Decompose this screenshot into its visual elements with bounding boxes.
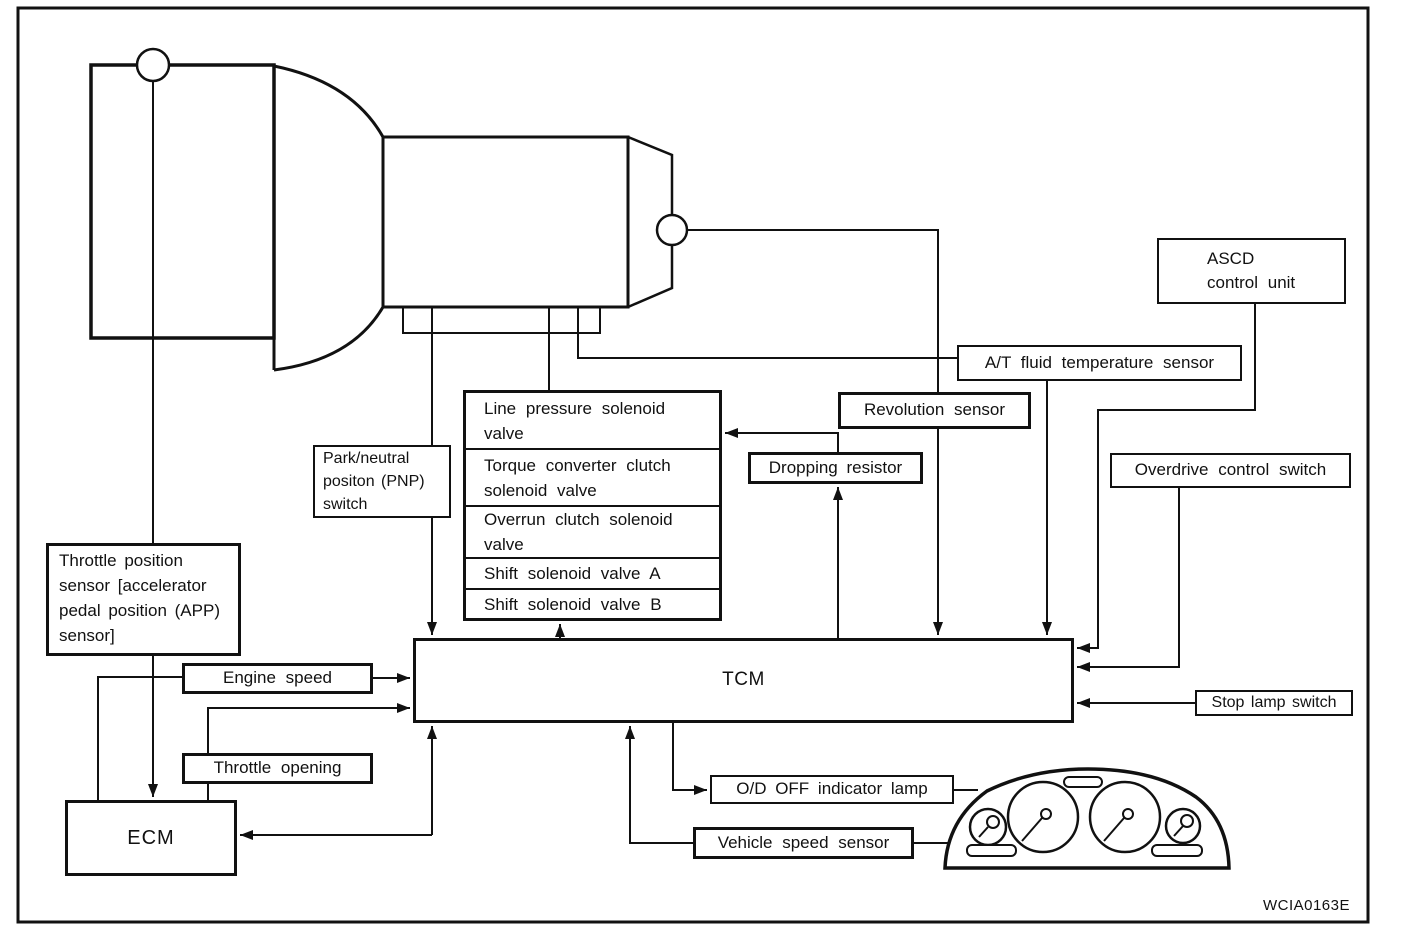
ascd-control-unit-box: ASCD control unit xyxy=(1157,238,1346,304)
at-fluid-temp-sensor-box: A/T fluid temperature sensor xyxy=(957,345,1242,381)
ascd-line1: ASCD xyxy=(1207,247,1254,271)
pnp-switch-box: Park/neutral positon (PNP) switch xyxy=(313,445,451,518)
revolution-sensor-box: Revolution sensor xyxy=(838,392,1031,429)
od-off-indicator-lamp-box: O/D OFF indicator lamp xyxy=(710,775,954,804)
line-vehicle-speed-to-tcm xyxy=(630,726,693,843)
transmission-body xyxy=(383,137,628,307)
figure-code-watermark: WCIA0163E xyxy=(1230,897,1350,914)
throttle-position-sensor-box: Throttle position sensor [accelerator pe… xyxy=(46,543,241,656)
bell-housing-top-curve xyxy=(274,66,383,137)
line-dropping-resistor-to-solenoids xyxy=(725,433,838,452)
line-pan-to-at-fluid-sensor xyxy=(578,333,957,358)
overdrive-control-switch-box: Overdrive control switch xyxy=(1110,453,1351,488)
at-control-system-diagram: Throttle position sensor [accelerator pe… xyxy=(0,0,1408,936)
sensor-port-circle-right xyxy=(657,215,687,245)
stop-lamp-switch-box: Stop lamp switch xyxy=(1195,690,1353,716)
vehicle-speed-sensor-box: Vehicle speed sensor xyxy=(693,827,914,859)
ascd-line2: control unit xyxy=(1207,271,1295,295)
solenoid-row-shift-a: Shift solenoid valve A xyxy=(466,559,719,590)
engine-block xyxy=(91,65,274,338)
sensor-port-circle-left xyxy=(137,49,169,81)
engine-transmission-drawing xyxy=(91,49,687,370)
line-throttle-opening-to-tcm xyxy=(208,708,410,753)
solenoid-valves-box: Line pressure solenoid valve Torque conv… xyxy=(463,390,722,621)
solenoid-row-shift-b: Shift solenoid valve B xyxy=(466,590,719,618)
line-tcm-to-od-off-lamp xyxy=(673,723,707,790)
line-ecm-to-engine-speed xyxy=(98,677,182,800)
solenoid-row-line-pressure: Line pressure solenoid valve xyxy=(466,393,719,450)
solenoid-row-overrun-clutch: Overrun clutch solenoid valve xyxy=(466,507,719,559)
line-overdrive-switch-to-tcm xyxy=(1077,488,1179,667)
ecm-box: ECM xyxy=(65,800,237,876)
throttle-opening-box: Throttle opening xyxy=(182,753,373,784)
dropping-resistor-box: Dropping resistor xyxy=(748,452,923,484)
solenoid-row-torque-converter: Torque converter clutch solenoid valve xyxy=(466,450,719,507)
tcm-box: TCM xyxy=(413,638,1074,723)
instrument-cluster-drawing xyxy=(945,769,1229,868)
oil-pan xyxy=(403,307,600,333)
line-circle-to-revolution-sensor xyxy=(687,230,938,392)
engine-speed-box: Engine speed xyxy=(182,663,373,694)
bell-housing-bottom-curve xyxy=(274,307,383,370)
